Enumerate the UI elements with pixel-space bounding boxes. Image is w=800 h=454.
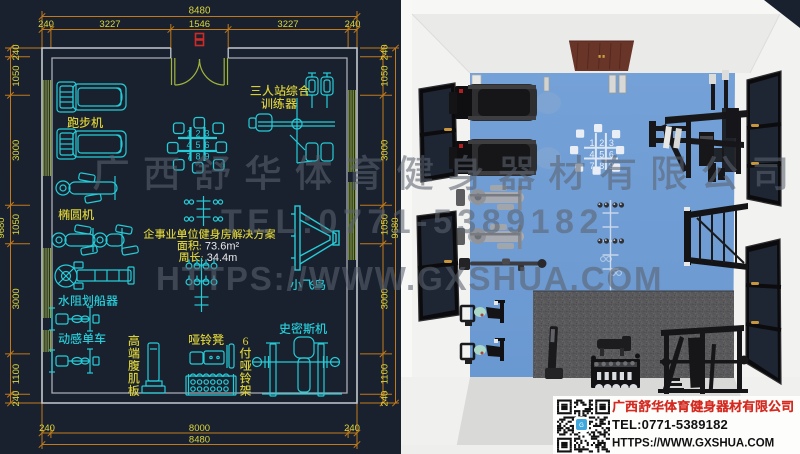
svg-text:高端腹肌板: 高端腹肌板 bbox=[127, 332, 140, 399]
svg-text:8480: 8480 bbox=[189, 6, 211, 17]
svg-text:跑步机: 跑步机 bbox=[67, 114, 104, 131]
svg-text:1546: 1546 bbox=[189, 19, 210, 30]
svg-text:240: 240 bbox=[344, 423, 360, 434]
svg-text:240: 240 bbox=[11, 44, 22, 60]
svg-text:HTTPS://WWW.GXSHUA.COM: HTTPS://WWW.GXSHUA.COM bbox=[612, 438, 774, 450]
svg-text:3000: 3000 bbox=[11, 288, 22, 309]
svg-text:哑铃凳: 哑铃凳 bbox=[188, 331, 224, 348]
svg-text:3227: 3227 bbox=[277, 19, 298, 30]
svg-text:8000: 8000 bbox=[189, 423, 210, 434]
svg-text:240: 240 bbox=[38, 19, 54, 30]
svg-text:9680: 9680 bbox=[0, 217, 7, 238]
svg-text:8480: 8480 bbox=[189, 435, 210, 446]
svg-text:240: 240 bbox=[345, 19, 361, 30]
svg-text:1100: 1100 bbox=[380, 364, 391, 384]
svg-text:240: 240 bbox=[39, 423, 55, 434]
svg-text:广西舒华体育健身器材有限公司: 广西舒华体育健身器材有限公司 bbox=[92, 143, 800, 198]
svg-text:240: 240 bbox=[380, 391, 391, 407]
svg-text:动感单车: 动感单车 bbox=[58, 330, 106, 347]
svg-text:TEL:0771-5389182: TEL:0771-5389182 bbox=[221, 203, 604, 241]
svg-text:G: G bbox=[579, 423, 584, 429]
svg-text:1: 1 bbox=[186, 129, 191, 139]
svg-text:TEL:0771-5389182: TEL:0771-5389182 bbox=[612, 417, 728, 432]
svg-text:1050: 1050 bbox=[380, 65, 391, 86]
svg-text:3: 3 bbox=[204, 129, 209, 139]
svg-text:1050: 1050 bbox=[11, 214, 22, 235]
svg-text:HTTPS://WWW.GXSHUA.COM: HTTPS://WWW.GXSHUA.COM bbox=[156, 260, 663, 297]
svg-text:广西舒华体育健身器材有限公司: 广西舒华体育健身器材有限公司 bbox=[611, 396, 794, 415]
svg-text:240: 240 bbox=[380, 44, 391, 60]
svg-text:1050: 1050 bbox=[11, 65, 22, 86]
svg-text:1100: 1100 bbox=[11, 364, 22, 384]
svg-text:240: 240 bbox=[11, 391, 22, 407]
svg-text:史密斯机: 史密斯机 bbox=[279, 320, 328, 337]
svg-text:2: 2 bbox=[195, 129, 200, 139]
svg-text:训练器: 训练器 bbox=[261, 95, 298, 112]
svg-text:椭圆机: 椭圆机 bbox=[58, 206, 95, 223]
svg-text:3227: 3227 bbox=[99, 19, 120, 30]
svg-text:3000: 3000 bbox=[11, 140, 22, 161]
